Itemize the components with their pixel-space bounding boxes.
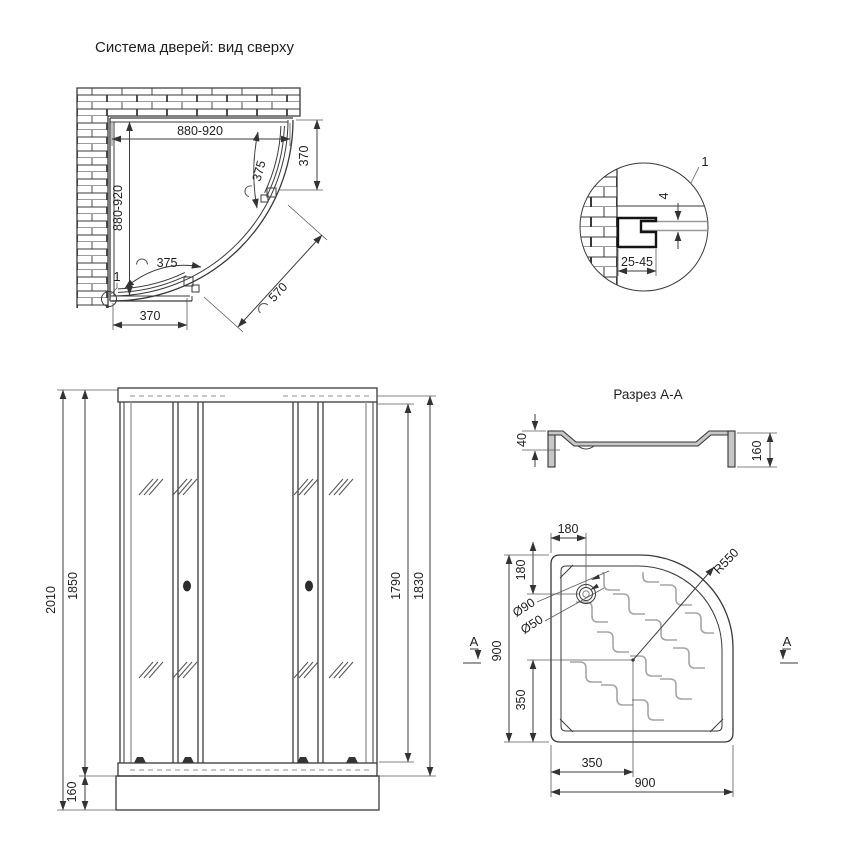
dim-side-label: 370 xyxy=(297,146,311,167)
door-handle-right[interactable] xyxy=(305,581,313,592)
dim-drain-offset-x-label: 180 xyxy=(558,522,579,536)
section-marker-left-label: A xyxy=(470,634,479,649)
dim-opening-label: 570 xyxy=(266,280,290,305)
dim-tray-height-label: 160 xyxy=(65,782,79,803)
front-view: 2010 1850 160 1790 1830 xyxy=(44,388,436,810)
dim-drain-offset-y-label: 180 xyxy=(514,560,528,581)
dim-opening-570: 570 xyxy=(204,205,327,332)
dim-adjustment-25-45: 25-45 xyxy=(618,249,656,276)
top-view: Система дверей: вид сверху xyxy=(77,39,327,332)
dim-width-880-920: 880-920 xyxy=(112,123,290,146)
section-view: Разрез А-А 40 160 xyxy=(515,387,777,467)
dim-door-glass-height-label: 1790 xyxy=(389,572,403,600)
top-view-title: Система дверей: вид сверху xyxy=(95,39,294,56)
dim-side-370: 370 xyxy=(279,120,323,190)
dim-adjustment-label: 25-45 xyxy=(621,255,653,269)
dim-tray-width-label: 900 xyxy=(635,776,656,790)
door-roller xyxy=(182,757,194,763)
dim-door-bottom-label: 375 xyxy=(157,256,178,270)
drawing-canvas: Система дверей: вид сверху xyxy=(0,0,850,850)
glass-panels xyxy=(120,402,377,763)
dim-tray-depth-label: 900 xyxy=(490,641,504,662)
arc-length-icon xyxy=(256,301,268,313)
dim-tray-height-160: 160 xyxy=(65,776,85,810)
section-marker-left: A xyxy=(463,634,481,663)
door-roller xyxy=(134,757,146,763)
section-marker-right-label: A xyxy=(783,634,792,649)
dim-total-height-2010: 2010 xyxy=(44,390,118,810)
dim-center-x-label: 350 xyxy=(582,756,603,770)
dim-section-height-160: 160 xyxy=(737,433,777,467)
arc-length-icon xyxy=(137,259,148,265)
dim-door-top-375: 375 xyxy=(244,132,269,208)
detail-ref-label: 1 xyxy=(701,154,708,169)
detail-ref-label: 1 xyxy=(113,269,120,284)
door-roller xyxy=(346,757,358,763)
enclosure-frame-top-view xyxy=(110,118,293,301)
door-roller xyxy=(297,757,309,763)
dim-bottom-label: 370 xyxy=(140,309,161,323)
fixed-glass-arc xyxy=(112,120,293,301)
dim-frame-height-1850: 1850 xyxy=(66,390,116,776)
anti-slip-pattern xyxy=(570,562,717,720)
section-marker-right: A xyxy=(780,634,798,663)
dim-frame-height-label: 1850 xyxy=(66,572,80,600)
dim-width-label: 880-920 xyxy=(177,124,223,138)
dim-glass-4: 4 xyxy=(657,192,678,249)
door-handle-left[interactable] xyxy=(183,581,191,592)
dim-door-glass-height-1790: 1790 xyxy=(377,404,414,762)
dim-glass-label: 4 xyxy=(657,192,671,199)
dim-door-top-label: 375 xyxy=(250,159,269,183)
dim-center-x-350: 350 xyxy=(551,660,633,797)
dim-tray-depth-900: 900 xyxy=(490,555,549,742)
dim-center-y-label: 350 xyxy=(514,690,528,711)
dim-glass-height-1830: 1830 xyxy=(377,396,436,776)
dim-depth-label: 880-920 xyxy=(111,185,125,231)
dim-bottom-370: 370 xyxy=(113,298,187,330)
wall-profile-section xyxy=(618,218,656,247)
dim-tray-width-900: 900 xyxy=(551,745,733,797)
dim-total-height-label: 2010 xyxy=(44,586,58,614)
tray-top-view: 180 180 900 350 350 900 xyxy=(463,522,798,797)
bottom-rail xyxy=(118,757,377,776)
tray-outline xyxy=(551,555,733,742)
dim-glass-height-label: 1830 xyxy=(412,572,426,600)
dim-radius-r550: R550 xyxy=(631,546,741,662)
technical-drawing-page: Система дверей: вид сверху xyxy=(0,0,850,850)
top-rail xyxy=(118,388,377,402)
arc-length-icon xyxy=(244,185,252,197)
dim-section-height-label: 160 xyxy=(750,441,764,462)
shower-tray-front xyxy=(116,776,379,810)
dim-radius-label: R550 xyxy=(711,546,742,577)
dim-basin-depth-label: 40 xyxy=(515,433,529,447)
section-title: Разрез А-А xyxy=(613,387,682,402)
detail-view: 4 25-45 1 xyxy=(579,154,709,291)
tray-cross-section xyxy=(548,431,735,467)
glass-hatch-marks xyxy=(139,479,353,678)
